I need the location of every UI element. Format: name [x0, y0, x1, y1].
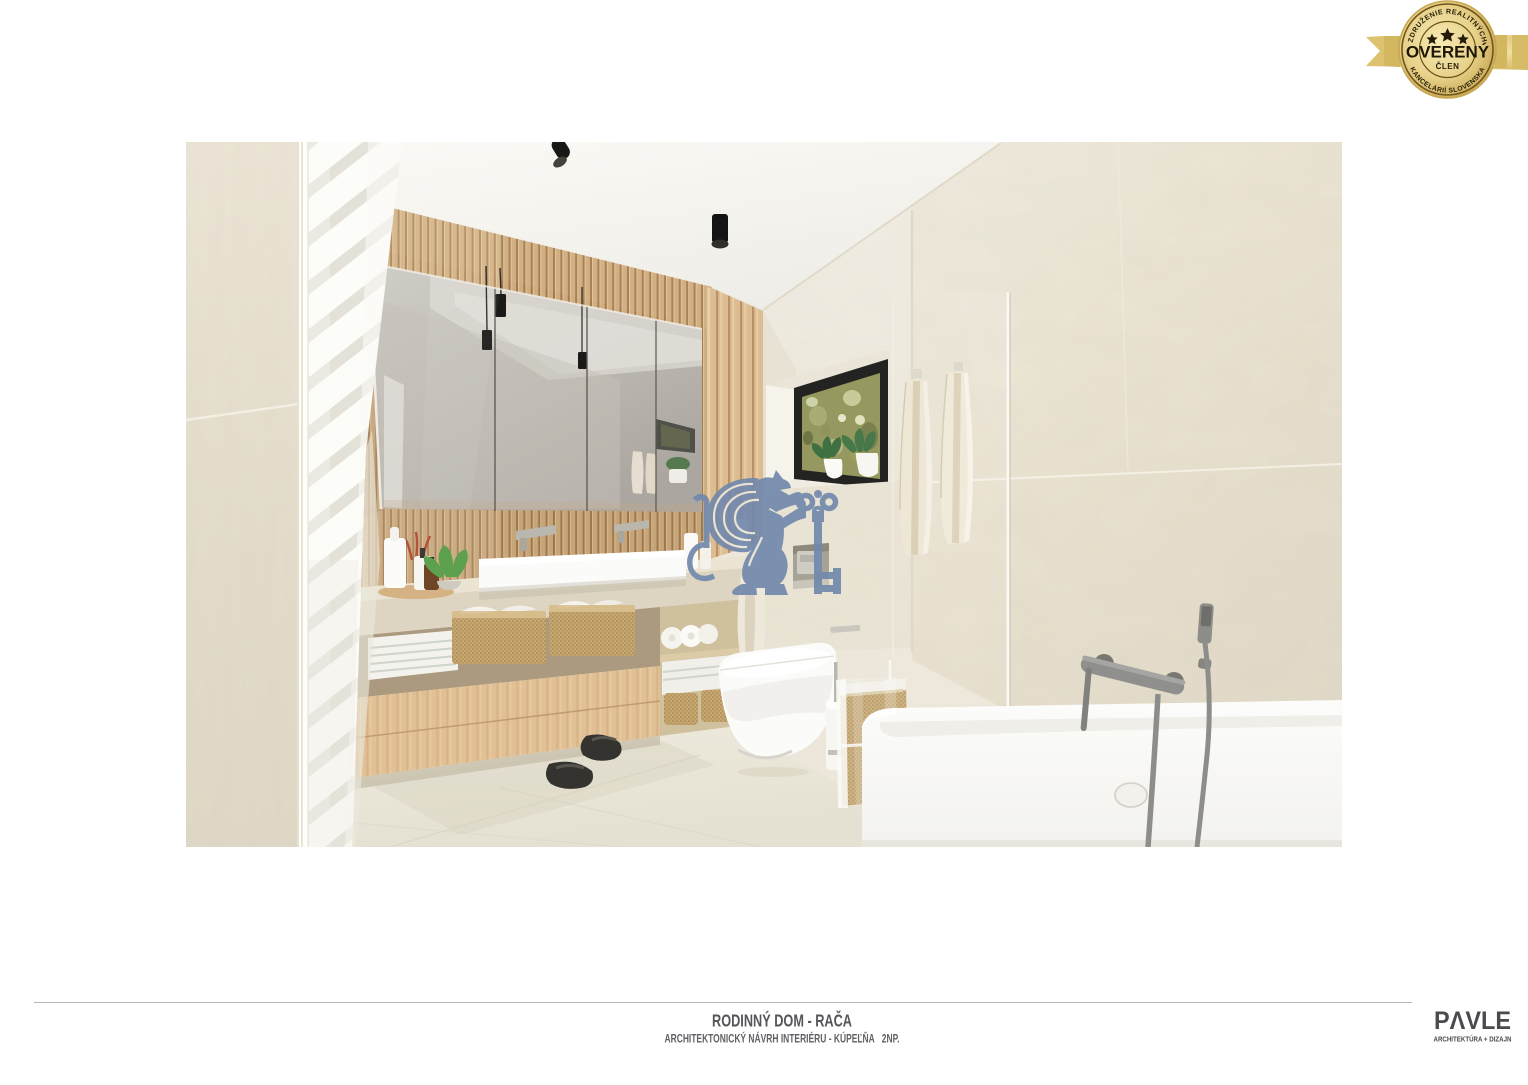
svg-text:ARCHITEKTÚRA + DIZAJN: ARCHITEKTÚRA + DIZAJN — [1434, 1035, 1512, 1044]
svg-text:RODINNÝ DOM - RAČA: RODINNÝ DOM - RAČA — [712, 1010, 852, 1031]
svg-text:ČLEN: ČLEN — [1436, 62, 1460, 71]
svg-text:OVERENÝ: OVERENÝ — [1406, 43, 1490, 62]
svg-text:ARCHITEKTONICKÝ NÁVRH INTERIÉR: ARCHITEKTONICKÝ NÁVRH INTERIÉRU - KÚPEĽŇ… — [665, 1033, 900, 1046]
svg-text:PΛVLE: PΛVLE — [1434, 1007, 1511, 1035]
